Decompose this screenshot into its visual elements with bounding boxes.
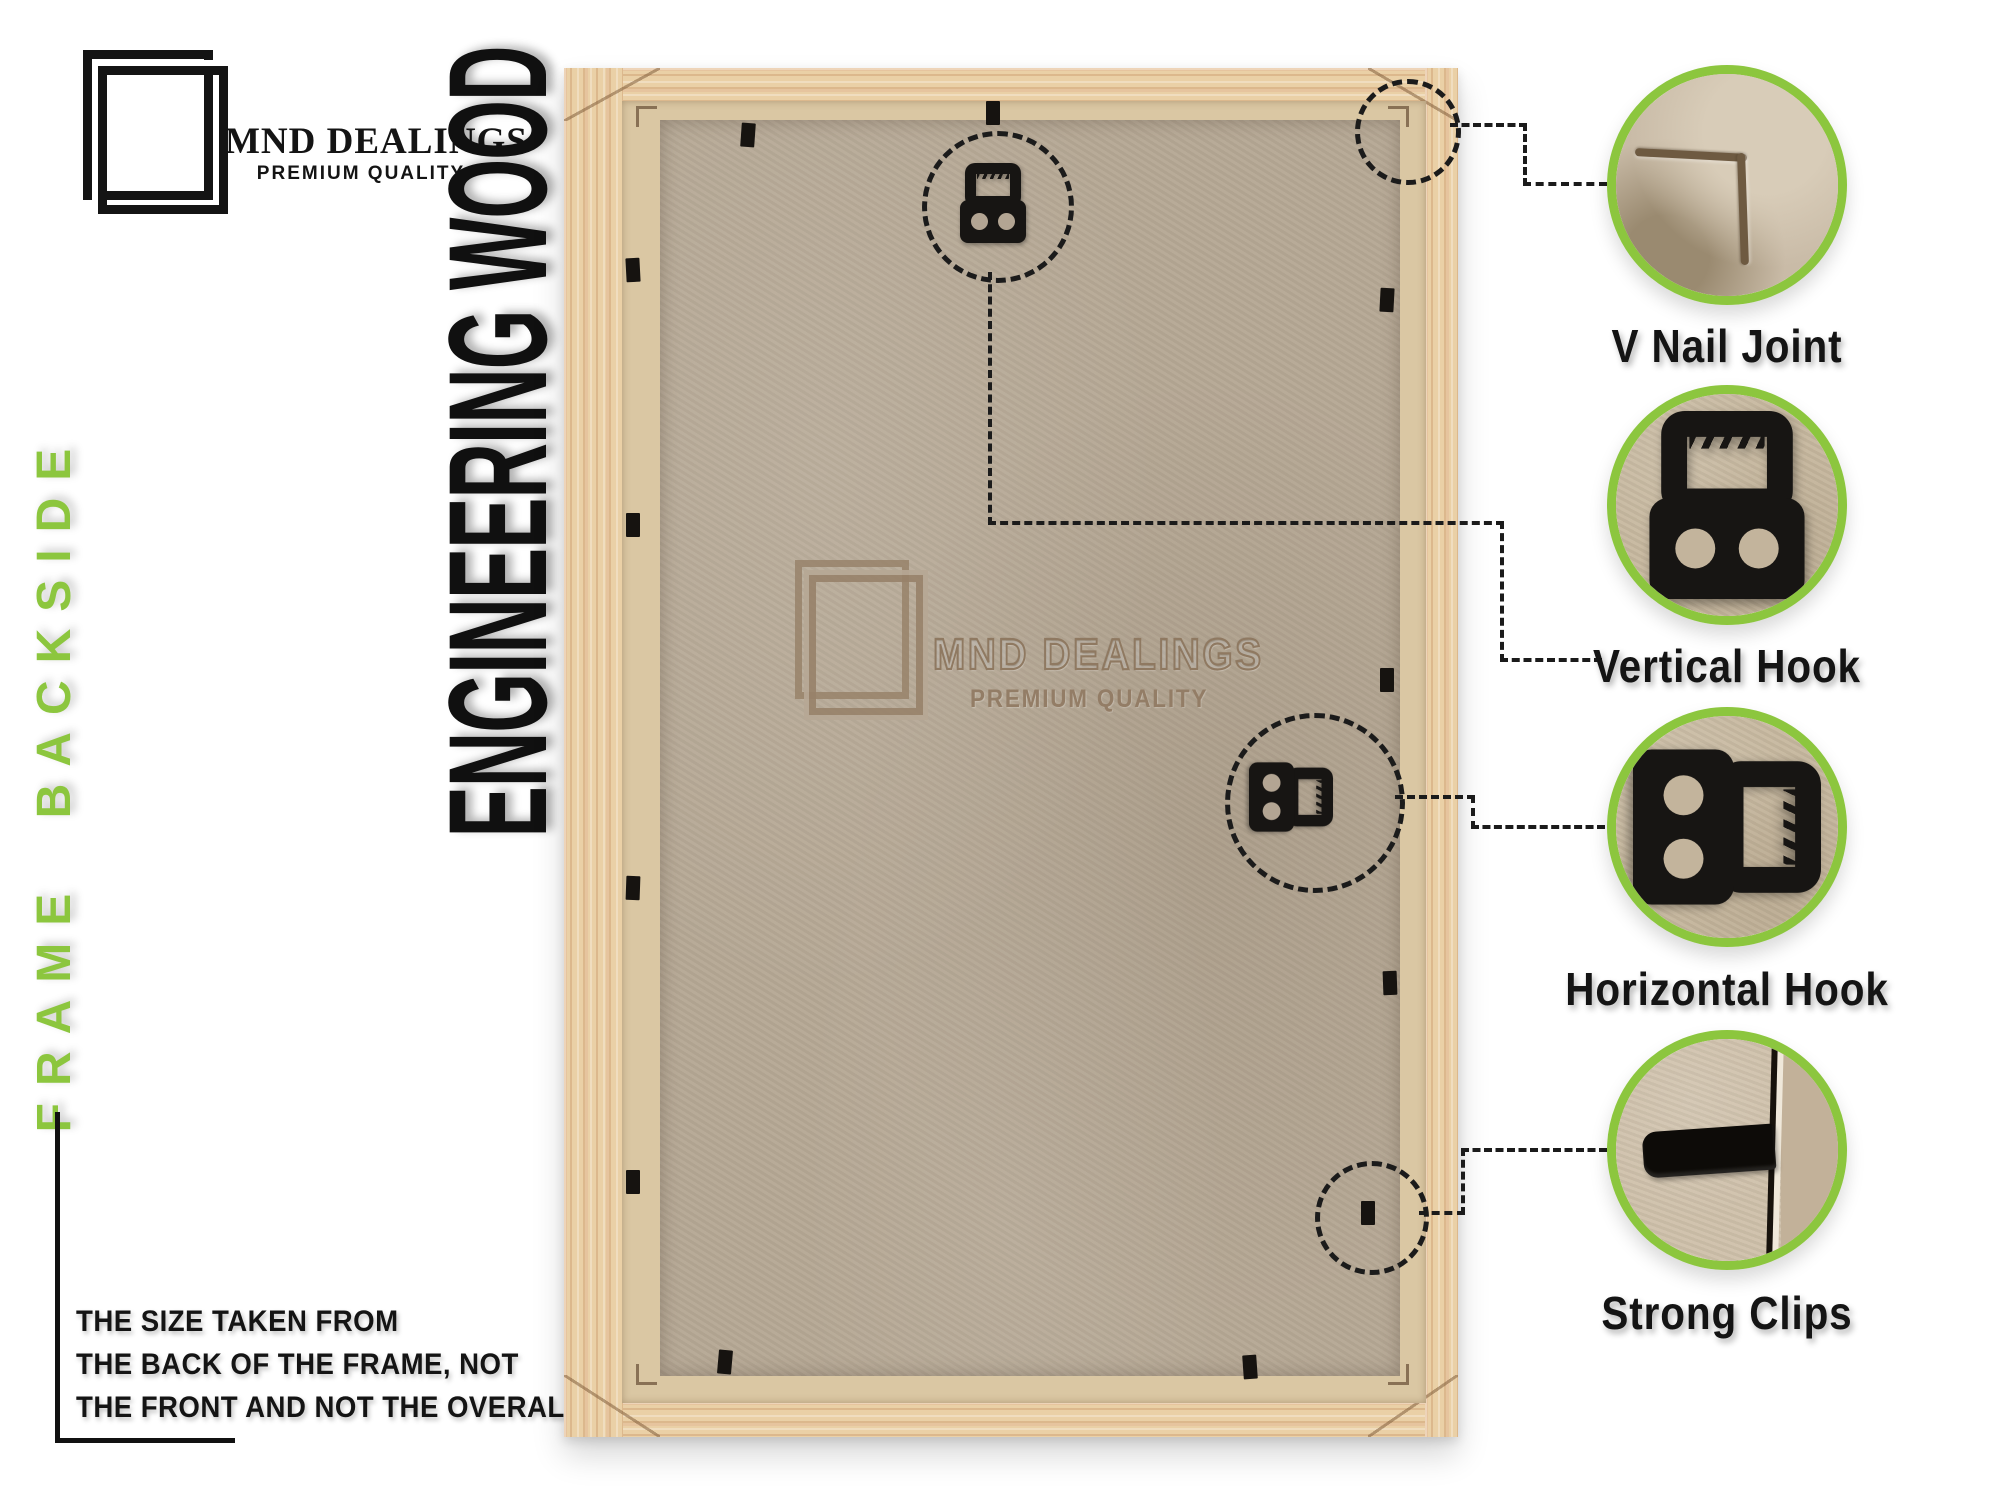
frame-outline-icon [809, 575, 923, 715]
metal-clip [626, 1170, 640, 1194]
screw-hole [1664, 775, 1704, 815]
callout-connector [1461, 1148, 1465, 1215]
callout-circle-horizontal-hook [1607, 707, 1847, 947]
dashed-marker-vertical-hook [922, 131, 1074, 283]
callout-label-v-nail-joint: V Nail Joint [1533, 319, 1920, 373]
metal-clip [986, 101, 1000, 125]
hook-plate [1633, 749, 1734, 904]
callout-label-vertical-hook: Vertical Hook [1533, 639, 1920, 693]
metal-clip [1379, 288, 1394, 313]
callout-connector [1395, 795, 1475, 799]
callout-label-horizontal-hook: Horizontal Hook [1533, 962, 1920, 1016]
callout-connector [1500, 521, 1504, 662]
horizontal-hook-icon [1633, 749, 1821, 904]
v-nail-groove [1635, 148, 1747, 162]
frame-wood-bottom [564, 1402, 1458, 1437]
screw-hole [1739, 529, 1779, 569]
hook-sawtooth [1783, 789, 1797, 864]
metal-clip [1242, 1355, 1258, 1380]
callout-circle-v-nail-joint [1607, 65, 1847, 305]
v-nail-mark-icon [1388, 1364, 1409, 1385]
watermark-tagline: PREMIUM QUALITY [970, 685, 1208, 714]
callout-connector [1419, 1211, 1465, 1215]
vertical-hook-icon [1649, 411, 1804, 599]
callout-connector [988, 521, 1504, 525]
corner-shadow [1607, 229, 1703, 305]
hook-sawtooth [1689, 435, 1764, 449]
frame-backside-label: FRAME BACKSIDE [20, 402, 90, 1162]
size-note: THE SIZE TAKEN FROM THE BACK OF THE FRAM… [76, 1300, 506, 1429]
frame-wood-left [564, 68, 623, 1437]
product-poster: MND DEALINGS PREMIUM QUALITY FRAME BACKS… [0, 0, 2000, 1500]
frame-back-photo: MND DEALINGS PREMIUM QUALITY [564, 68, 1458, 1437]
metal-clip [740, 123, 756, 148]
strong-clip-icon [1642, 1123, 1777, 1178]
frame-outline-icon [98, 66, 228, 214]
hook-plate [1649, 498, 1804, 599]
callout-connector [1471, 825, 1605, 829]
metal-clip [1380, 668, 1394, 692]
metal-clip [717, 1349, 733, 1374]
frame-wood-top [564, 68, 1458, 102]
callout-connector [1471, 795, 1475, 829]
note-bracket-horizontal-line [55, 1438, 235, 1443]
callout-circle-strong-clips [1607, 1030, 1847, 1270]
callout-connector [988, 272, 992, 525]
size-note-line: THE BACK OF THE FRAME, NOT [76, 1343, 472, 1386]
callout-connector [1461, 1148, 1607, 1152]
callout-connector [1523, 123, 1527, 186]
callout-circle-vertical-hook [1607, 385, 1847, 625]
metal-clip [625, 258, 640, 283]
dashed-marker-horizontal-hook [1225, 713, 1405, 893]
strong-clip-photo [1607, 1030, 1847, 1270]
frame-edge-band [1781, 1030, 1847, 1270]
metal-clip [626, 513, 640, 537]
metal-clip [626, 876, 641, 900]
horizontal-hook-photo [1607, 707, 1847, 947]
dashed-marker-v-nail-corner [1355, 79, 1461, 185]
size-note-line: THE SIZE TAKEN FROM [76, 1300, 472, 1343]
callout-connector [1450, 123, 1527, 127]
screw-hole [1664, 839, 1704, 879]
frame-wood-right [1425, 68, 1458, 1437]
screw-hole [1675, 529, 1715, 569]
vertical-hook-photo [1607, 385, 1847, 625]
v-nail-corner-photo [1607, 65, 1847, 305]
v-nail-groove [1737, 153, 1749, 265]
engineering-wood-label: ENGINEERING WOOD [428, 343, 568, 838]
metal-clip [1383, 971, 1398, 995]
v-nail-mark-icon [636, 106, 657, 127]
callout-label-strong-clips: Strong Clips [1533, 1286, 1920, 1340]
size-note-line: THE FRONT AND NOT THE OVERALL SIZE. [76, 1386, 472, 1429]
callout-connector [1523, 182, 1607, 186]
watermark-brand-name: MND DEALINGS [933, 630, 1264, 680]
note-bracket-vertical-line [55, 1112, 60, 1442]
dashed-marker-strong-clip [1315, 1161, 1429, 1275]
v-nail-mark-icon [636, 1364, 657, 1385]
